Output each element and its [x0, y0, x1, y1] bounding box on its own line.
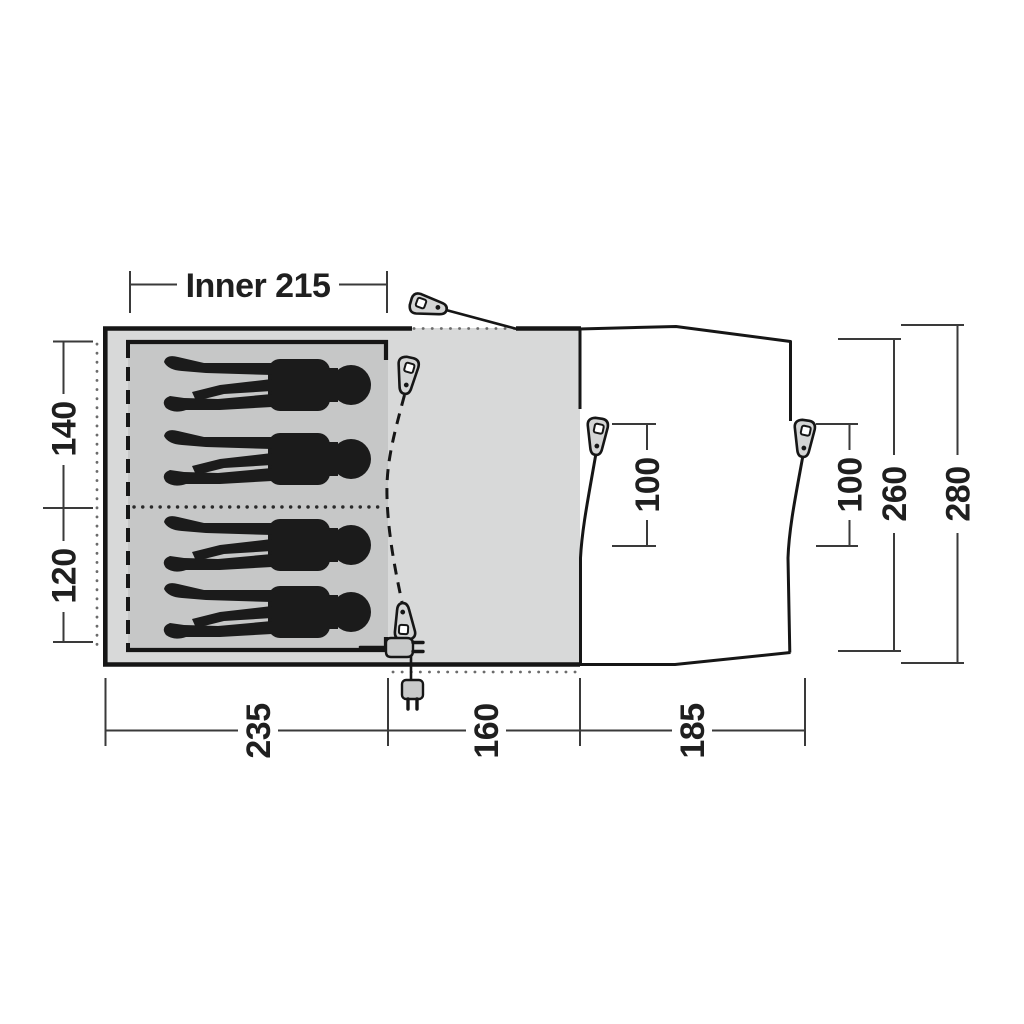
dim-label-total-span: 280 [940, 466, 978, 521]
porch-area [580, 327, 790, 665]
dim-label-door-right: 100 [832, 457, 870, 512]
tent-floorplan-diagram: Inner 215 140 120 235 160 185 100 100 26… [0, 0, 1024, 1024]
dim-label-inner-width: Inner 215 [186, 267, 331, 305]
dim-label-door-left: 100 [629, 457, 667, 512]
dim-label-front-section: 120 [46, 548, 84, 603]
dim-label-living-depth: 160 [468, 703, 506, 758]
porch-right-door-edge [788, 457, 803, 653]
dim-label-porch-span: 260 [876, 466, 914, 521]
tent-peg-icon [793, 419, 816, 457]
dim-label-rear-section: 140 [46, 401, 84, 456]
tent-peg-icon [408, 292, 448, 319]
dim-label-porch-depth: 185 [674, 703, 712, 758]
tent-floorplan-page: Inner 215 140 120 235 160 185 100 100 26… [0, 0, 1024, 1024]
power-plug-icon-outside [402, 680, 423, 709]
guy-line-top [446, 310, 517, 329]
dim-label-bedroom-depth: 235 [240, 703, 278, 758]
